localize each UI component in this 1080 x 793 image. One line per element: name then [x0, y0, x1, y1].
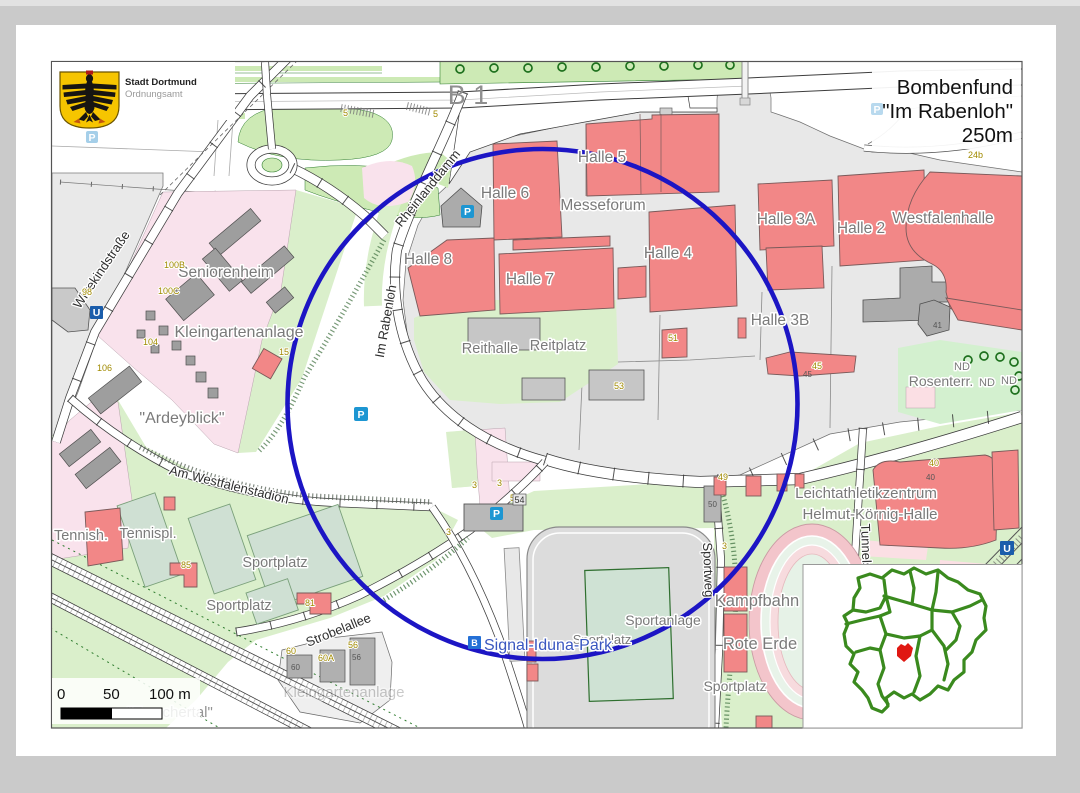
svg-text:P: P — [464, 206, 471, 218]
svg-text:"Ardeyblick": "Ardeyblick" — [139, 410, 224, 427]
svg-text:0: 0 — [57, 686, 65, 703]
svg-text:106: 106 — [97, 363, 112, 373]
svg-text:Bombenfund: Bombenfund — [897, 76, 1013, 99]
svg-text:3: 3 — [497, 478, 502, 488]
svg-text:Seniorenheim: Seniorenheim — [178, 264, 274, 281]
svg-text:Sportanlage: Sportanlage — [625, 612, 701, 628]
svg-text:15: 15 — [279, 347, 289, 357]
svg-text:Rote Erde: Rote Erde — [723, 635, 797, 653]
svg-text:60A: 60A — [318, 653, 334, 663]
svg-text:Helmut-Körnig-Halle: Helmut-Körnig-Halle — [802, 506, 937, 523]
svg-text:41: 41 — [933, 321, 942, 330]
svg-text:54: 54 — [514, 495, 524, 505]
svg-text:Signal-Iduna-Park: Signal-Iduna-Park — [484, 637, 613, 654]
svg-text:Reithalle: Reithalle — [462, 341, 518, 357]
svg-text:"Im Rabenloh": "Im Rabenloh" — [882, 100, 1013, 123]
svg-text:3: 3 — [722, 541, 727, 551]
svg-text:Halle 4: Halle 4 — [644, 245, 693, 262]
svg-text:100B: 100B — [164, 260, 185, 270]
svg-text:24b: 24b — [968, 150, 983, 160]
svg-text:Leichtathletikzentrum: Leichtathletikzentrum — [795, 485, 937, 502]
svg-text:60: 60 — [291, 663, 300, 672]
svg-text:53: 53 — [614, 381, 624, 391]
svg-text:250m: 250m — [962, 124, 1013, 147]
svg-text:Tennispl.: Tennispl. — [119, 526, 176, 542]
svg-text:Tennish.: Tennish. — [54, 528, 108, 544]
svg-text:Halle 3B: Halle 3B — [751, 312, 810, 329]
svg-text:Kampfbahn: Kampfbahn — [715, 592, 799, 610]
svg-text:P: P — [493, 508, 500, 520]
svg-text:Halle 2: Halle 2 — [837, 220, 885, 237]
svg-text:5: 5 — [343, 108, 348, 118]
svg-text:Halle 7: Halle 7 — [506, 271, 554, 288]
svg-text:60: 60 — [286, 646, 296, 656]
svg-text:Sportplatz: Sportplatz — [206, 598, 271, 614]
svg-text:81: 81 — [305, 598, 315, 608]
svg-text:3: 3 — [446, 527, 451, 537]
svg-text:45: 45 — [812, 361, 822, 371]
svg-text:40: 40 — [929, 458, 939, 468]
svg-text:5: 5 — [433, 109, 438, 119]
svg-text:ND: ND — [954, 361, 970, 373]
svg-text:50: 50 — [708, 500, 717, 509]
svg-text:40: 40 — [926, 473, 935, 482]
svg-text:U: U — [93, 307, 101, 319]
svg-text:B: B — [471, 638, 478, 648]
svg-text:B 1: B 1 — [448, 80, 489, 110]
svg-text:56: 56 — [352, 653, 361, 662]
svg-text:Reitplatz: Reitplatz — [530, 338, 586, 354]
svg-text:Messeforum: Messeforum — [560, 197, 645, 214]
svg-text:Sportplatz: Sportplatz — [703, 678, 766, 694]
svg-text:104: 104 — [143, 337, 158, 347]
svg-text:Halle 8: Halle 8 — [404, 251, 452, 268]
svg-text:P: P — [873, 104, 880, 116]
svg-text:Stadt Dortmund: Stadt Dortmund — [125, 77, 197, 88]
svg-text:Kleingartenanlage: Kleingartenanlage — [284, 684, 405, 701]
svg-text:Sportplatz: Sportplatz — [242, 555, 307, 571]
svg-text:U: U — [1003, 543, 1011, 555]
svg-text:Rosenterr.: Rosenterr. — [909, 373, 974, 389]
svg-text:51: 51 — [668, 333, 678, 343]
svg-text:56: 56 — [348, 640, 358, 650]
svg-text:45: 45 — [803, 370, 812, 379]
svg-text:100 m: 100 m — [149, 686, 191, 703]
svg-text:85: 85 — [181, 560, 191, 570]
svg-text:Ordnungsamt: Ordnungsamt — [125, 89, 183, 100]
svg-text:Westfalenhalle: Westfalenhalle — [892, 210, 993, 227]
svg-text:P: P — [88, 132, 95, 144]
svg-text:49: 49 — [718, 472, 728, 482]
svg-text:100C: 100C — [158, 286, 180, 296]
svg-text:Halle 6: Halle 6 — [481, 185, 529, 202]
svg-text:Halle 3A: Halle 3A — [757, 211, 816, 228]
svg-text:ND: ND — [979, 377, 995, 389]
svg-text:Halle 5: Halle 5 — [578, 149, 626, 166]
svg-text:3: 3 — [472, 480, 477, 490]
svg-text:Kleingartenanlage: Kleingartenanlage — [175, 324, 304, 341]
svg-text:Sportweg: Sportweg — [700, 542, 717, 597]
svg-text:98: 98 — [82, 287, 92, 297]
svg-text:ND: ND — [1001, 375, 1017, 387]
svg-text:P: P — [357, 409, 364, 421]
svg-text:50: 50 — [103, 686, 120, 703]
